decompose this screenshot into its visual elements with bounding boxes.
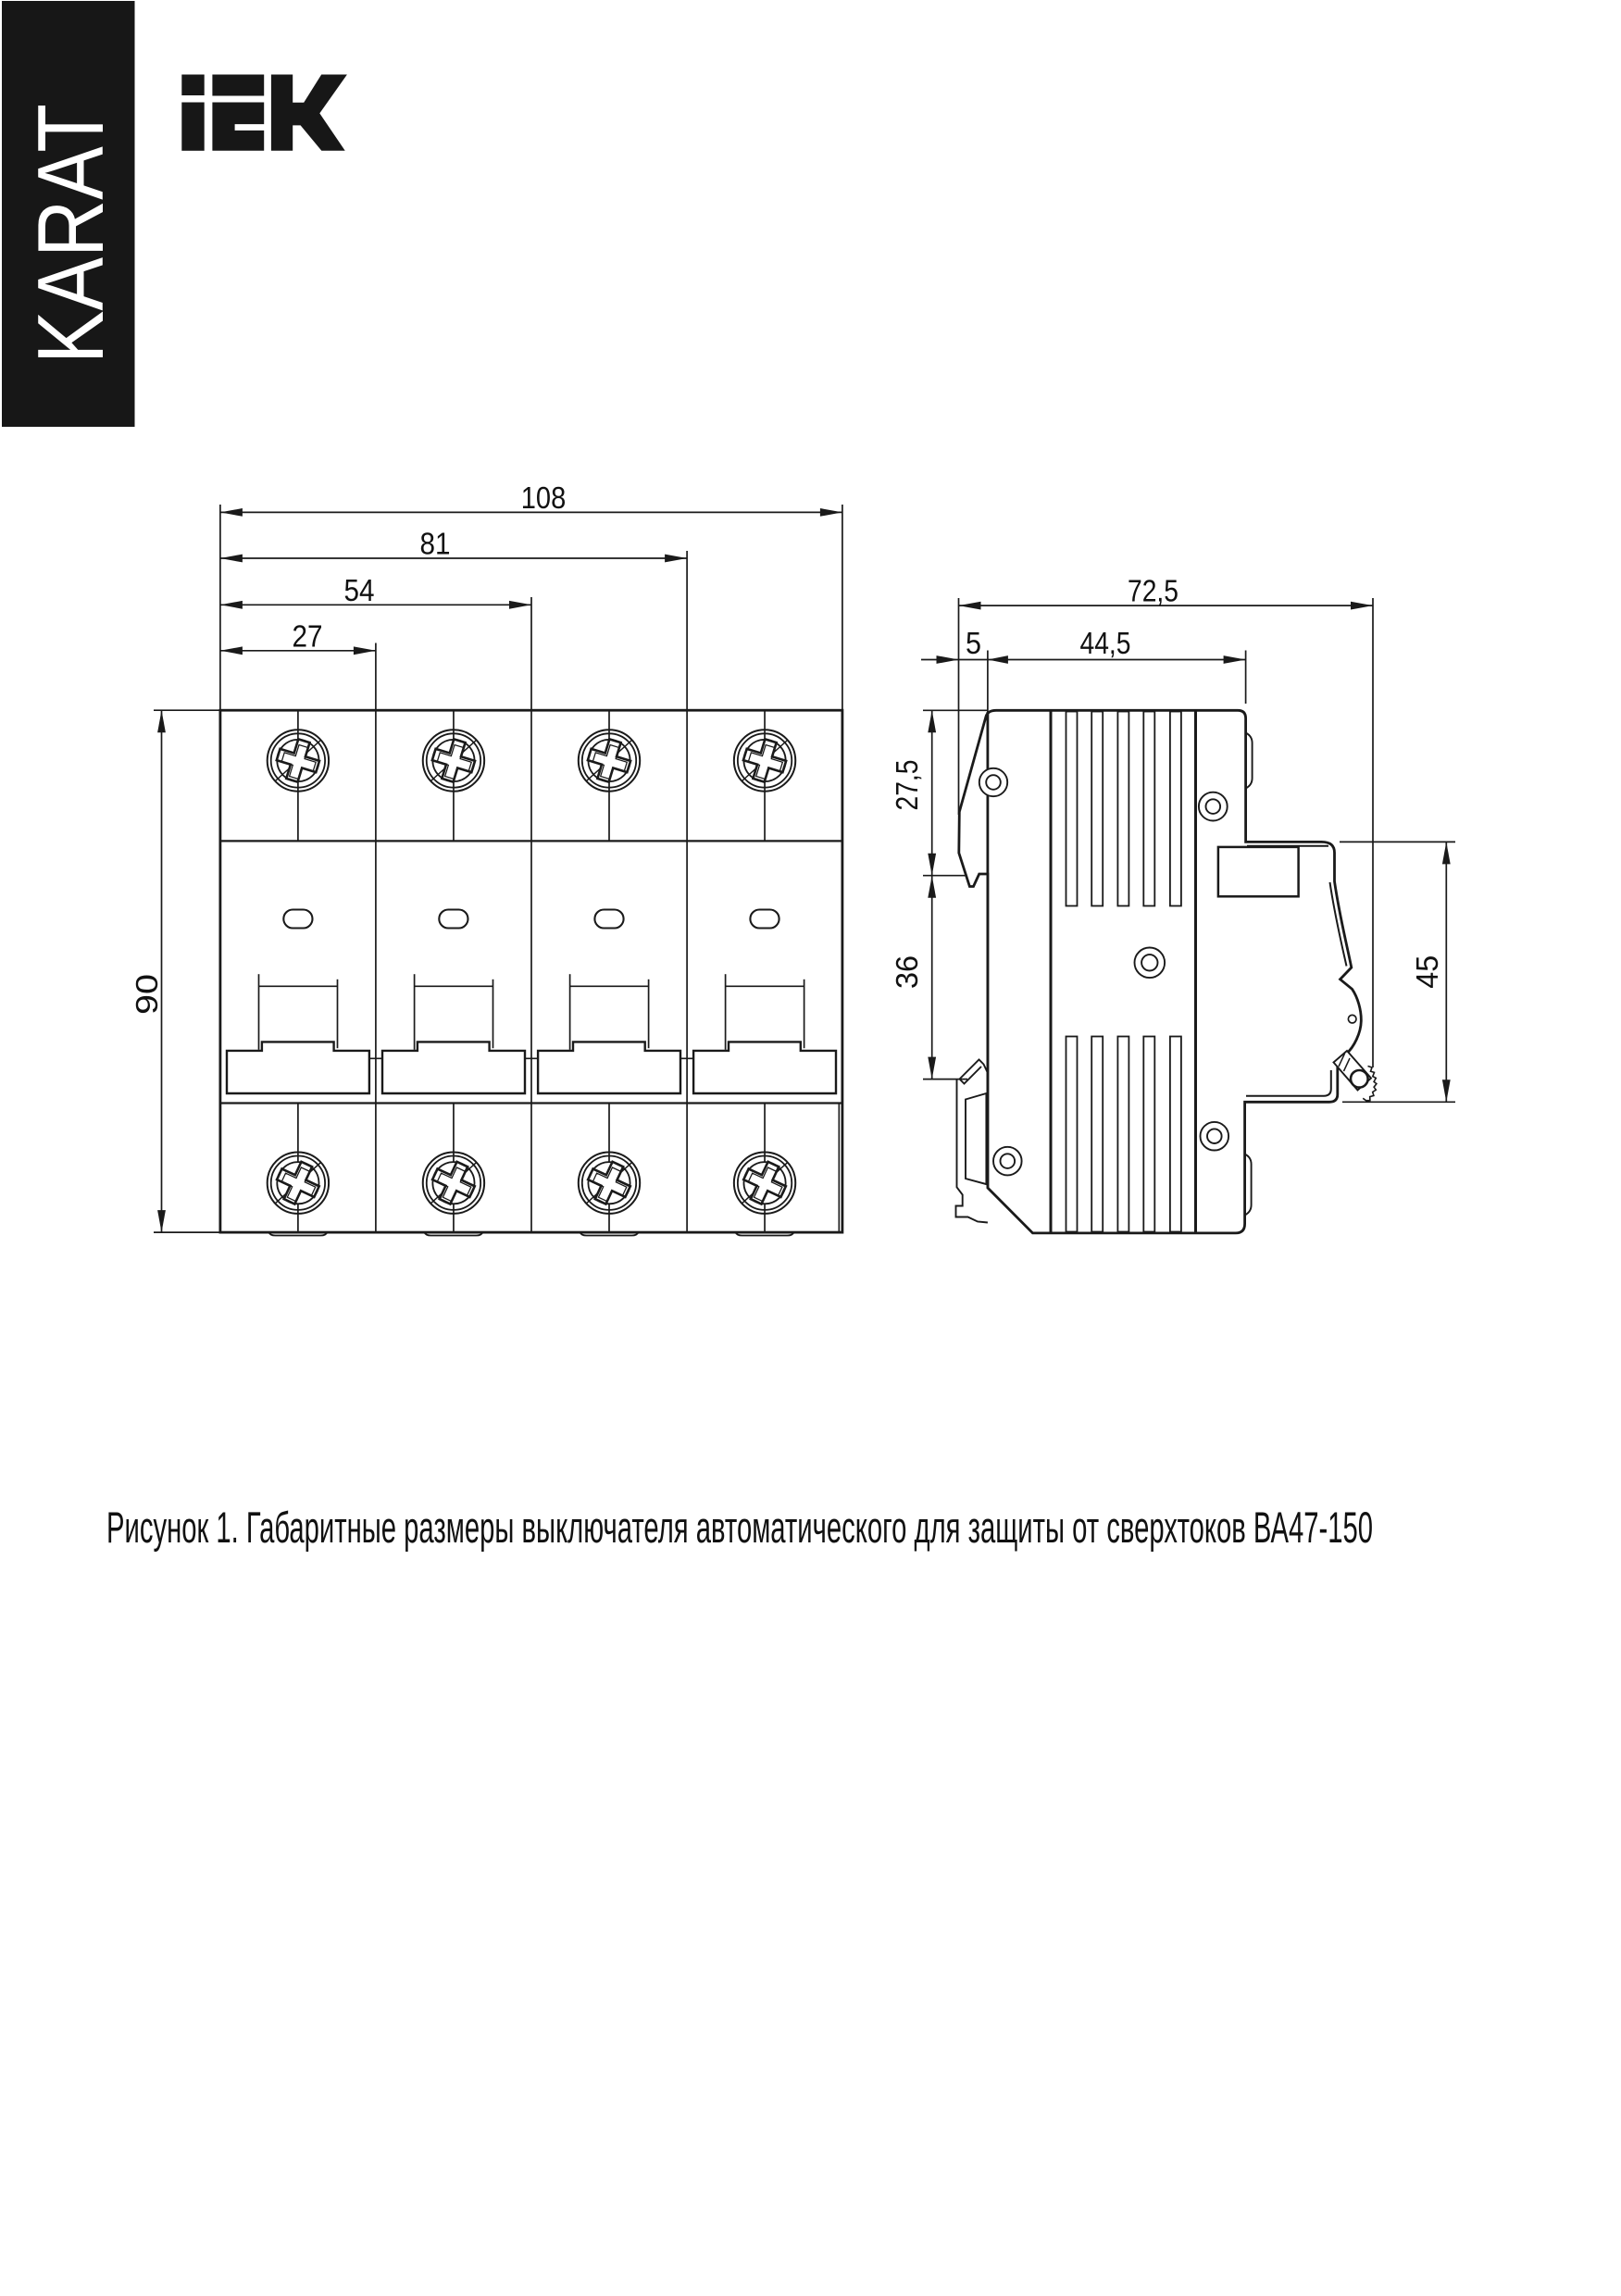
svg-text:KARAT: KARAT	[19, 104, 123, 364]
svg-text:45: 45	[1411, 955, 1445, 989]
svg-text:44,5: 44,5	[1080, 627, 1131, 661]
svg-text:36: 36	[891, 955, 925, 989]
svg-text:81: 81	[420, 528, 451, 562]
svg-text:5: 5	[966, 627, 981, 661]
svg-text:72,5: 72,5	[1128, 575, 1178, 609]
svg-text:27: 27	[293, 619, 323, 654]
svg-text:27,5: 27,5	[891, 760, 925, 811]
svg-text:90: 90	[131, 974, 165, 1015]
svg-text:108: 108	[521, 481, 567, 516]
svg-text:Рисунок 1. Габаритные размеры: Рисунок 1. Габаритные размеры выключател…	[106, 1503, 1373, 1552]
svg-text:54: 54	[344, 574, 375, 608]
